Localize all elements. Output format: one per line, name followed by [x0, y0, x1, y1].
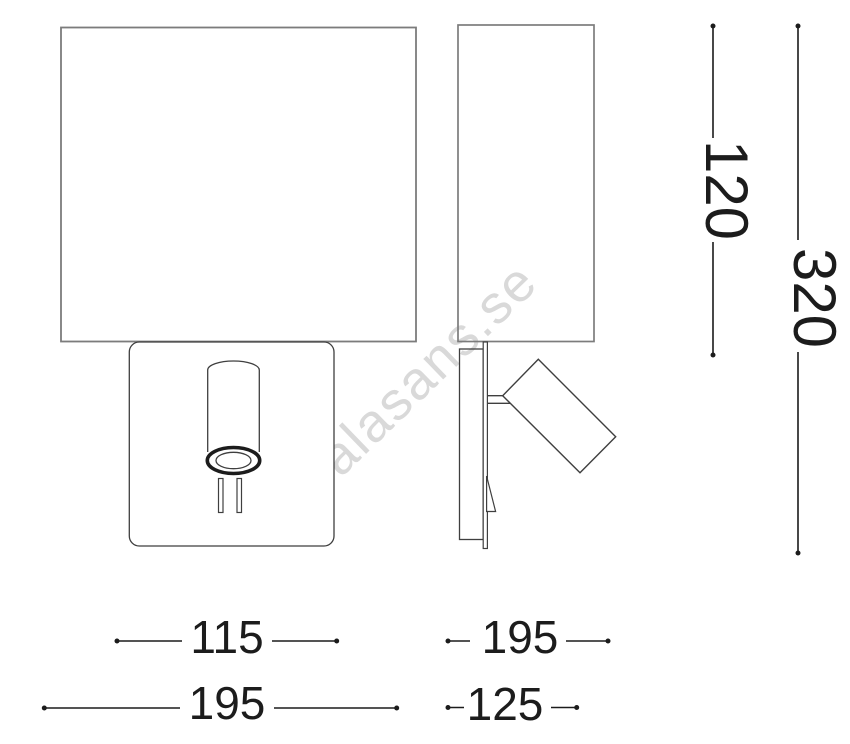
dim-label-bottom-right-upper: 195: [482, 614, 559, 660]
side-mount-plate: [483, 342, 487, 549]
side-cable-wedge: [487, 476, 496, 512]
dim-dot: [796, 551, 801, 556]
front-shade: [61, 28, 416, 342]
side-body-box: [460, 349, 484, 540]
dim-dot: [446, 705, 451, 710]
dim-label-right-inner: 120: [696, 140, 756, 240]
dim-dot: [711, 353, 716, 358]
spot-head: [503, 359, 616, 472]
dim-dot: [574, 705, 579, 710]
dim-dot: [394, 706, 399, 711]
dim-dot: [446, 639, 451, 644]
front-backplate: [129, 342, 334, 546]
dim-dot: [606, 639, 611, 644]
side-shade: [458, 25, 594, 342]
reading-light-lens-ring: [207, 448, 259, 474]
switch-slot-right: [237, 479, 242, 513]
dim-dot: [42, 706, 47, 711]
side-view: [458, 25, 616, 549]
dim-dot: [796, 24, 801, 29]
dim-label-bottom-left-outer: 195: [189, 680, 266, 726]
technical-drawing-page: alasans.se: [0, 0, 850, 744]
front-view: [61, 28, 416, 547]
switch-slot-left: [219, 479, 224, 513]
dim-dot: [711, 24, 716, 29]
dim-label-bottom-left-inner: 115: [190, 614, 263, 660]
dim-label-right-outer: 320: [784, 248, 844, 348]
dim-dot: [115, 639, 120, 644]
lamp-dimension-drawing: [0, 0, 850, 744]
dim-label-bottom-right-lower: 125: [467, 681, 544, 727]
dim-dot: [334, 639, 339, 644]
